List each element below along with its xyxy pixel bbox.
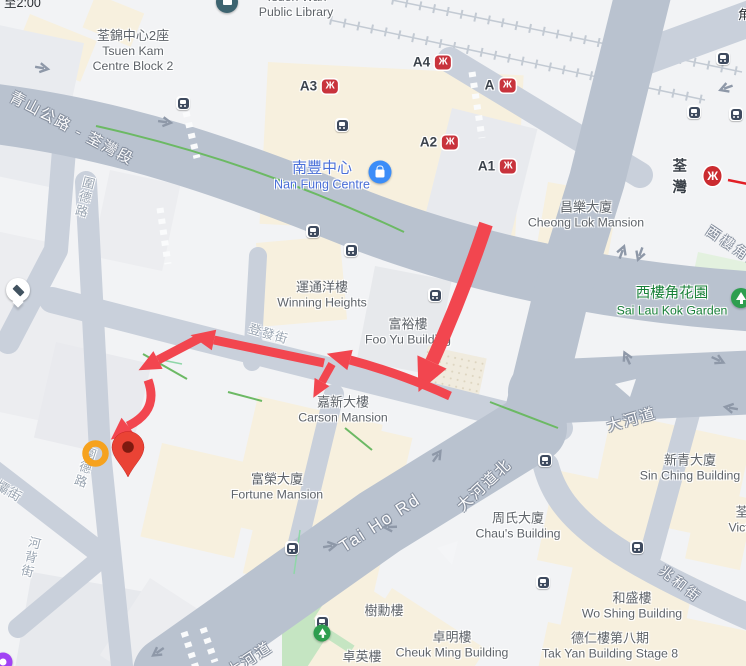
mtr-logo-icon: Ж bbox=[435, 55, 451, 69]
mtr-exit-a2[interactable]: A2 Ж bbox=[420, 135, 458, 150]
building-label-cheuk-ming[interactable]: 卓明樓 Cheuk Ming Building bbox=[396, 630, 509, 661]
bus-stop-icon[interactable] bbox=[344, 243, 358, 257]
building-label-winning-heights[interactable]: 運通洋樓 Winning Heights bbox=[277, 280, 367, 311]
poi-label-public-library[interactable]: Tsuen Wan Public Library bbox=[259, 0, 334, 20]
bus-stop-icon[interactable] bbox=[306, 224, 320, 238]
mtr-logo-icon: Ж bbox=[500, 159, 516, 173]
road-lane-1 bbox=[252, 256, 258, 362]
building-label-cheong-lok[interactable]: 昌樂大廈 Cheong Lok Mansion bbox=[528, 200, 644, 231]
bus-stop-icon[interactable] bbox=[536, 575, 550, 589]
bus-stop-icon[interactable] bbox=[335, 118, 349, 132]
building-label-shu-fan[interactable]: 樹勳樓 bbox=[364, 603, 403, 619]
poi-label-nan-fung-centre[interactable]: 南豐中心 Nan Fung Centre bbox=[274, 157, 370, 192]
bus-stop-icon[interactable] bbox=[630, 540, 644, 554]
bus-stop-icon[interactable] bbox=[687, 105, 701, 119]
bus-stop-icon[interactable] bbox=[716, 51, 730, 65]
building-label-cheuk-ying[interactable]: 卓英樓 bbox=[342, 649, 381, 665]
park-icon-small[interactable] bbox=[314, 625, 331, 642]
bus-stop-icon[interactable] bbox=[176, 96, 190, 110]
mtr-logo-icon: Ж bbox=[322, 79, 338, 93]
mtr-logo-icon: Ж bbox=[499, 78, 515, 92]
bus-stop-icon[interactable] bbox=[285, 541, 299, 555]
mtr-exit-a[interactable]: A Ж bbox=[485, 78, 516, 93]
building-label-tak-yan[interactable]: 德仁樓第八期 Tak Yan Building Stage 8 bbox=[542, 631, 678, 662]
building-label-victoria-partial[interactable]: 荃 Victo bbox=[728, 505, 746, 536]
building-label-wo-shing[interactable]: 和盛樓 Wo Shing Building bbox=[582, 591, 682, 622]
mtr-logo-icon: Ж bbox=[442, 135, 458, 149]
mtr-line-segment bbox=[728, 180, 746, 184]
building-label-tsuen-kam-centre[interactable]: 荃錦中心2座 Tsuen Kam Centre Block 2 bbox=[93, 28, 174, 74]
building-label-sin-ching[interactable]: 新青大廈 Sin Ching Building bbox=[640, 453, 741, 484]
mtr-exit-a3[interactable]: A3 Ж bbox=[300, 79, 338, 94]
bus-stop-icon[interactable] bbox=[729, 107, 743, 121]
bus-stop-icon[interactable] bbox=[538, 453, 552, 467]
shopping-mall-icon[interactable] bbox=[369, 161, 392, 184]
mtr-station-tsuen-wan[interactable]: 荃灣 Ж bbox=[673, 155, 722, 197]
mtr-station-icon: Ж bbox=[704, 166, 722, 186]
poi-label-sai-lau-kok-garden[interactable]: 西樓角花園 Sai Lau Kok Garden bbox=[617, 286, 728, 319]
shopping-bag-icon bbox=[376, 170, 385, 178]
map-canvas[interactable]: 青山公路 - 荃灣段 登發街 Tai Ho Rd 大河道北 大河道 大河道 兆和… bbox=[0, 0, 746, 666]
road-east-branch bbox=[540, 382, 746, 392]
tree-icon bbox=[736, 292, 746, 300]
building-label-fortune-mansion[interactable]: 富榮大廈 Fortune Mansion bbox=[231, 472, 323, 503]
mtr-exit-a4[interactable]: A4 Ж bbox=[413, 55, 451, 70]
school-icon[interactable] bbox=[6, 278, 30, 302]
building-label-carson-mansion[interactable]: 嘉新大樓 Carson Mansion bbox=[298, 395, 388, 426]
park-icon[interactable] bbox=[731, 288, 746, 308]
clipped-text-top-right: 角 bbox=[738, 4, 746, 23]
building-label-chaus[interactable]: 周氏大廈 Chau's Building bbox=[475, 511, 560, 542]
book-icon bbox=[223, 0, 232, 5]
tree-icon bbox=[318, 628, 326, 634]
traffic-island bbox=[437, 541, 458, 565]
mtr-exit-a1[interactable]: A1 Ж bbox=[478, 159, 516, 174]
clipped-text-top-left: 至2:00 bbox=[4, 0, 41, 11]
mortarboard-icon bbox=[12, 284, 24, 296]
building-label-foo-yu[interactable]: 富裕樓 Foo Yu Building bbox=[365, 317, 451, 348]
bus-stop-icon[interactable] bbox=[428, 288, 442, 302]
